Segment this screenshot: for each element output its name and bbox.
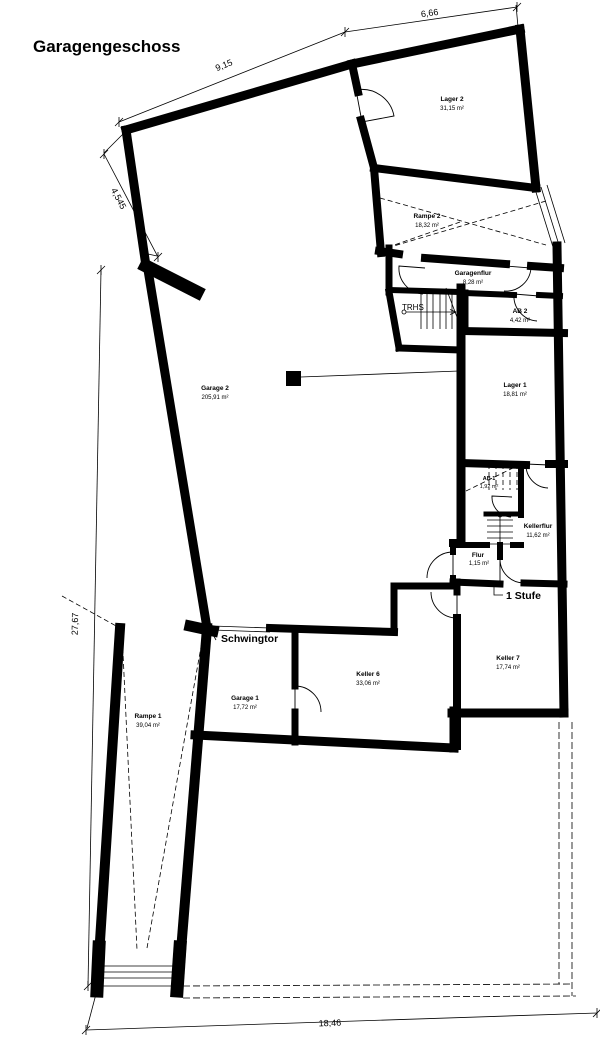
dimension-north: 6,66: [345, 2, 521, 32]
inner-walls: [270, 64, 564, 746]
room-area-rampe2: 18,32 m²: [415, 223, 439, 229]
room-label-keller6: Keller 6: [356, 671, 380, 678]
ramp-bottom-grate: [99, 966, 177, 986]
room-area-keller6: 33,06 m²: [356, 681, 380, 687]
room-area-flur: 1,15 m²: [469, 561, 489, 567]
window-band: [535, 185, 565, 247]
room-label-flur: Flur: [472, 552, 485, 559]
stufe-label: 1 Stufe: [506, 590, 541, 602]
room-label-garage2: Garage 2: [201, 385, 229, 392]
schwingtor-label: Schwingtor: [221, 633, 278, 645]
schwingtor-door: [213, 626, 270, 632]
room-label-garagenflur: Garagenflur: [455, 270, 492, 277]
room-label-garage1: Garage 1: [231, 695, 259, 702]
annotation-labels: TRHS Schwingtor 1 Stufe: [221, 303, 541, 645]
dim-label-west: 27,67: [70, 613, 80, 636]
room-area-ab1: 1,92 m²: [480, 484, 499, 490]
floor-plan-page: 9,15 6,66 4,545 27,67 18,46 Garagengesch…: [0, 0, 600, 1061]
room-area-rampe1: 39,04 m²: [136, 723, 160, 729]
column: [286, 371, 301, 386]
room-label-rampe1: Rampe 1: [134, 713, 161, 720]
room-label-keller7: Keller 7: [496, 655, 520, 662]
room-label-ab1: AB 1: [483, 476, 496, 482]
room-label-kellerflur: Kellerflur: [524, 523, 553, 530]
dimension-south: 18,46: [82, 994, 600, 1035]
dim-label-nw: 9,15: [214, 57, 234, 73]
room-label-ab2: AB 2: [513, 308, 528, 315]
room-area-garage1: 17,72 m²: [233, 705, 257, 711]
trhs-label: TRHS: [402, 303, 424, 312]
room-area-kellerflur: 11,62 m²: [526, 533, 549, 539]
room-area-lager1: 18,81 m²: [503, 392, 527, 398]
page-title: Garagengeschoss: [33, 37, 180, 56]
room-area-lager2: 31,15 m²: [440, 106, 464, 112]
room-label-rampe2: Rampe 2: [413, 213, 440, 220]
beam-line: [301, 371, 459, 377]
ramp2-slope-lines: [380, 198, 546, 250]
room-area-garagenflur: 8,28 m²: [463, 280, 483, 286]
outer-walls: [97, 29, 564, 991]
dim-label-south: 18,46: [318, 1018, 341, 1029]
room-label-lager1: Lager 1: [503, 382, 527, 389]
dim-label-north: 6,66: [420, 7, 439, 19]
room-area-garage2: 205,91 m²: [201, 395, 228, 401]
room-label-lager2: Lager 2: [440, 96, 464, 103]
floor-plan-drawing: 9,15 6,66 4,545 27,67 18,46 Garagengesch…: [0, 0, 600, 1061]
dim-label-west-diagonal: 4,545: [109, 186, 128, 211]
room-area-keller7: 17,74 m²: [496, 665, 520, 671]
site-boundary-dashed: [183, 722, 576, 998]
room-area-ab2: 4,42 m²: [510, 318, 530, 324]
